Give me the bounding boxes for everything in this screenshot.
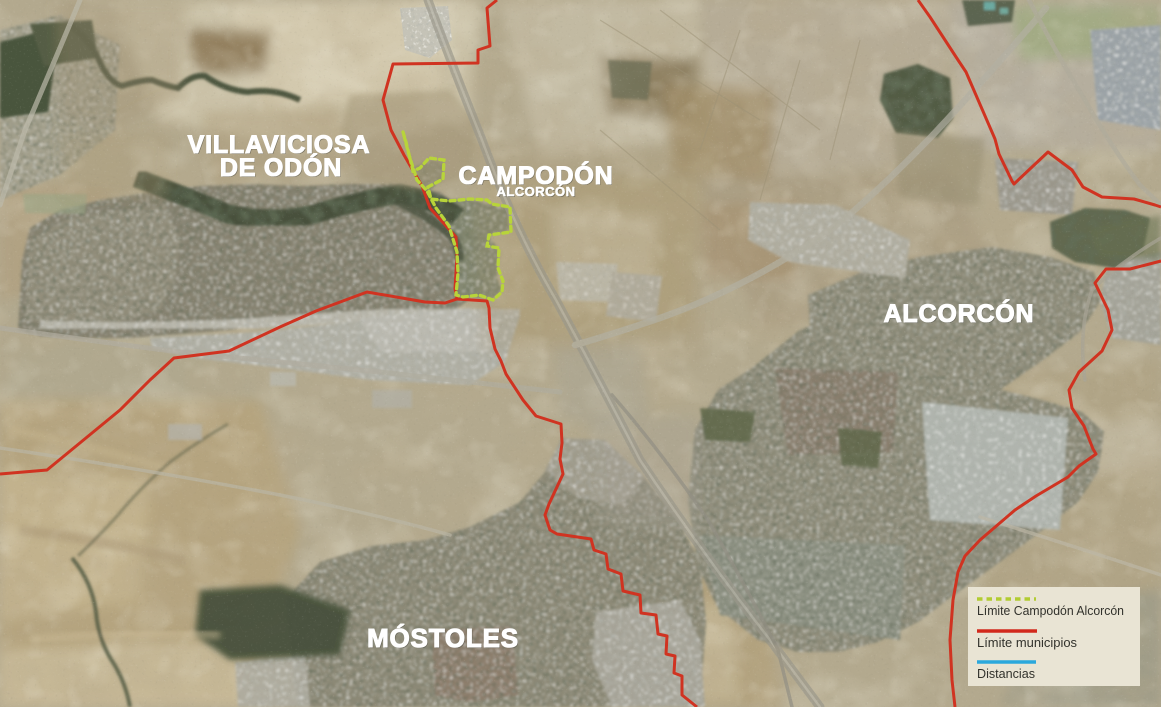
- svg-text:Distancias: Distancias: [977, 666, 1035, 681]
- svg-text:MÓSTOLES: MÓSTOLES: [367, 623, 519, 653]
- svg-text:Límite Campodón Alcorcón: Límite Campodón Alcorcón: [977, 603, 1124, 618]
- svg-text:DE ODÓN: DE ODÓN: [220, 152, 342, 182]
- svg-text:Límite municipios: Límite municipios: [977, 635, 1077, 650]
- svg-text:ALCORCÓN: ALCORCÓN: [496, 184, 575, 199]
- svg-text:ALCORCÓN: ALCORCÓN: [884, 298, 1035, 328]
